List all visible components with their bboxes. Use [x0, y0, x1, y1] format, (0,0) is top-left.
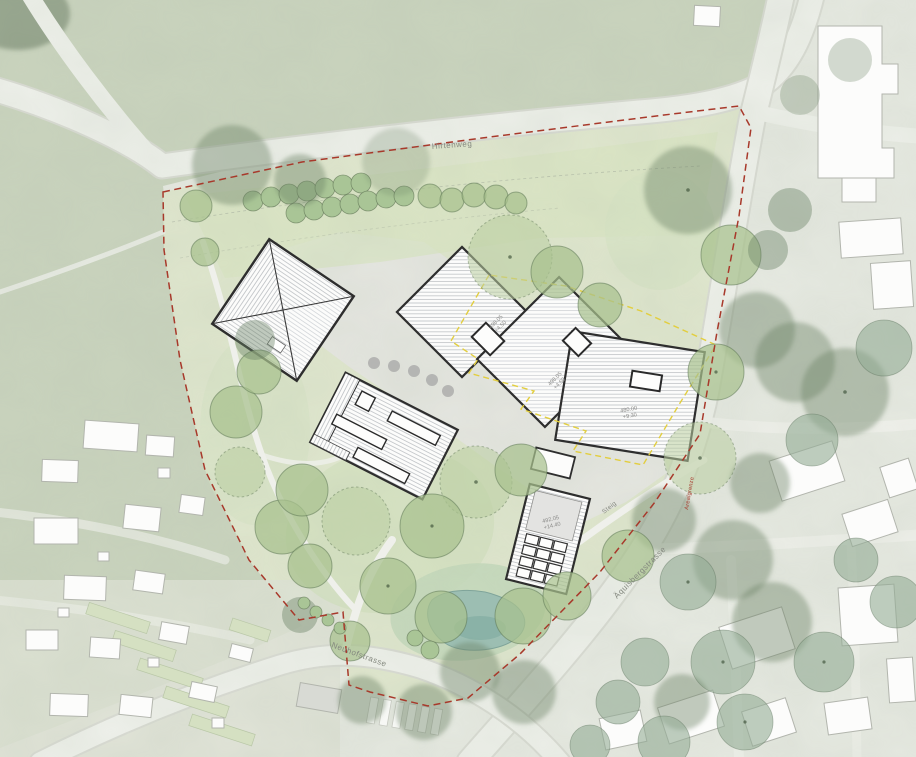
- tree-trunk: [714, 370, 717, 373]
- tree: [407, 630, 423, 646]
- tree: [215, 447, 265, 497]
- tree: [505, 192, 527, 214]
- tree: [484, 185, 508, 209]
- tree: [828, 38, 872, 82]
- tree: [786, 414, 838, 466]
- tree: [288, 544, 332, 588]
- tree: [596, 680, 640, 724]
- shed: [58, 608, 69, 617]
- tree: [298, 597, 310, 609]
- existing-building: [89, 637, 120, 659]
- tree-trunk: [386, 584, 389, 587]
- tree: [235, 320, 275, 360]
- tree: [276, 464, 328, 516]
- existing-building: [34, 518, 78, 544]
- existing-building: [123, 504, 161, 532]
- existing-building: [145, 435, 174, 457]
- tree: [191, 238, 219, 266]
- existing-building: [50, 693, 89, 716]
- tree: [602, 530, 654, 582]
- tree: [834, 538, 878, 582]
- tree: [768, 188, 812, 232]
- tree: [870, 576, 916, 628]
- existing-building: [693, 5, 720, 26]
- tree: [338, 676, 386, 724]
- tree: [421, 641, 439, 659]
- tree: [388, 360, 400, 372]
- tree: [543, 572, 591, 620]
- tree: [408, 365, 420, 377]
- tree: [440, 642, 500, 702]
- tree: [531, 246, 583, 298]
- existing-building: [886, 657, 915, 703]
- tree: [492, 660, 556, 724]
- tree: [748, 230, 788, 270]
- tree: [180, 190, 212, 222]
- tree: [340, 194, 360, 214]
- tree: [440, 188, 464, 212]
- tree: [358, 191, 378, 211]
- tree-trunk: [743, 720, 746, 723]
- tree: [426, 374, 438, 386]
- shed: [98, 552, 109, 561]
- existing-building: [179, 494, 205, 515]
- existing-building: [64, 575, 107, 600]
- shed: [148, 658, 159, 667]
- existing-building: [839, 218, 903, 258]
- existing-building: [26, 630, 58, 650]
- tree: [780, 75, 820, 115]
- tree: [286, 203, 306, 223]
- tree-trunk: [698, 456, 702, 460]
- tree: [322, 197, 342, 217]
- existing-building: [842, 178, 876, 202]
- courtyard: [630, 371, 662, 391]
- tree: [418, 184, 442, 208]
- existing-building: [119, 694, 153, 717]
- existing-building: [870, 261, 913, 310]
- tree-trunk: [508, 255, 512, 259]
- tree: [856, 320, 912, 376]
- tree-trunk: [843, 390, 847, 394]
- tree: [368, 357, 380, 369]
- shed: [212, 718, 224, 728]
- existing-building: [133, 570, 165, 594]
- tree: [730, 453, 790, 513]
- tree: [396, 684, 452, 740]
- site-plan: Hirtenweg Äquisbergstrasse Neuhofstrasse…: [0, 0, 916, 757]
- tree-trunk: [686, 188, 690, 192]
- tree: [621, 638, 669, 686]
- tree-trunk: [474, 480, 478, 484]
- tree: [442, 385, 454, 397]
- existing-building: [824, 697, 872, 735]
- tree-trunk: [721, 660, 724, 663]
- tree: [495, 444, 547, 496]
- tree-trunk: [822, 660, 825, 663]
- tree: [333, 175, 353, 195]
- existing-building: [42, 459, 79, 482]
- tree: [578, 283, 622, 327]
- tree-trunk: [430, 524, 433, 527]
- tree: [362, 128, 430, 196]
- existing-building: [83, 420, 139, 452]
- tree: [322, 487, 390, 555]
- tree-trunk: [686, 580, 689, 583]
- shed: [158, 468, 170, 478]
- tree: [462, 183, 486, 207]
